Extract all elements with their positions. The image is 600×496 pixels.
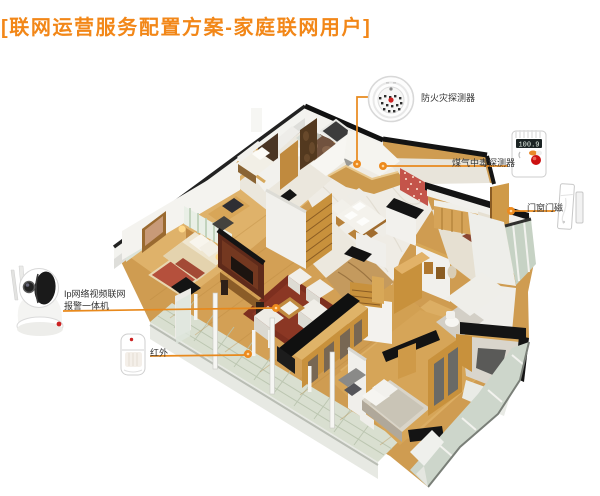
svg-text:100.9: 100.9 xyxy=(518,142,539,150)
